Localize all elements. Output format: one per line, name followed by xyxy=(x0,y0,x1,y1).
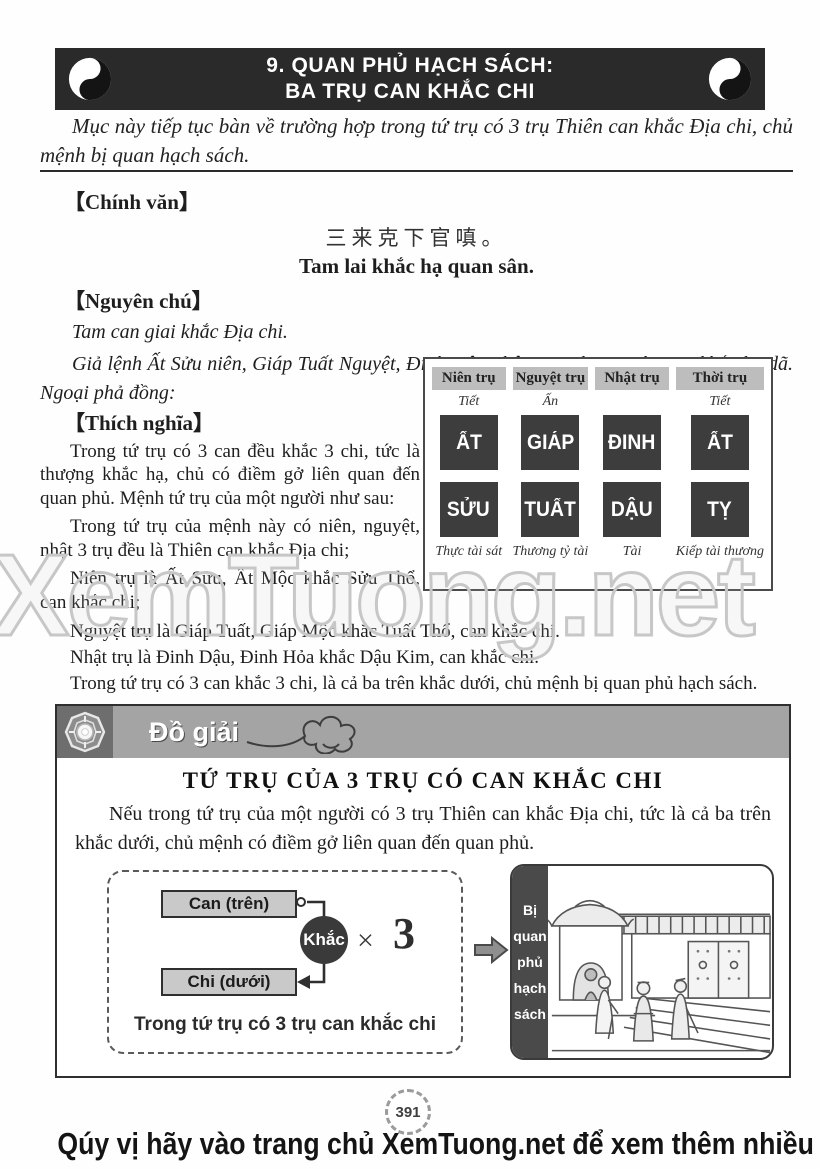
pillar-chi-text: TỴ xyxy=(708,498,733,522)
divider-rule xyxy=(40,170,793,172)
pillar-chi-text: SỬU xyxy=(447,498,490,522)
pillar-column-nhat: Nhật trụ ĐINH DẬU Tài xyxy=(595,367,669,583)
pillar-can-text: ẤT xyxy=(707,431,733,455)
pillar-can-text: ẤT xyxy=(456,431,482,455)
thich-nghia-para: Nhật trụ là Đinh Dậu, Đinh Hỏa khắc Dậu … xyxy=(40,645,793,670)
heading-nguyen-chu: 【Nguyên chú】 xyxy=(64,285,793,315)
pillar-god-top: Tiết xyxy=(709,390,730,413)
pillar-can-box: ẤT xyxy=(691,415,749,470)
left-column: 【Thích nghĩa】 Trong tứ trụ có 3 can đều … xyxy=(40,412,420,614)
result-word: hạch xyxy=(514,980,547,996)
thich-nghia-para: Trong tứ trụ có 3 can đều khắc 3 chi, tứ… xyxy=(40,440,420,511)
result-word: phủ xyxy=(517,954,543,970)
pillar-header: Nguyệt trụ xyxy=(513,367,589,390)
block-arrow-icon xyxy=(473,936,509,970)
pillar-can-text: ĐINH xyxy=(608,431,655,455)
pillar-column-nien: Niên trụ Tiết ẤT SỬU Thực tài sát xyxy=(432,367,506,583)
chapter-intro: Mục này tiếp tục bàn về trường hợp trong… xyxy=(40,112,793,170)
verse-transliteration: Tam lai khắc hạ quan sân. xyxy=(40,254,793,279)
pillar-header: Thời trụ xyxy=(676,367,764,390)
do-giai-label: Đồ giải xyxy=(149,717,239,748)
main-content: 【Chính văn】 三来克下官嗔。 Tam lai khắc hạ quan… xyxy=(40,180,793,1078)
nguyen-chu-para1: Tam can giai khắc Địa chi. xyxy=(40,318,793,347)
pillar-column-thoi: Thời trụ Tiết ẤT TỴ Kiếp tài thương xyxy=(676,367,764,583)
diagram-dashed-frame: Can (trên) Khắc × 3 Chi (dưới) Trong tứ … xyxy=(107,870,463,1054)
diagram-caption: Trong tứ trụ có 3 trụ can khắc chi xyxy=(109,1014,461,1036)
chinese-verse: 三来克下官嗔。 xyxy=(40,222,793,252)
four-pillar-table: Niên trụ Tiết ẤT SỬU Thực tài sát Nguyệt… xyxy=(423,357,773,591)
do-giai-paragraph: Nếu trong tứ trụ của một người có 3 trụ … xyxy=(75,800,771,858)
pillar-column-nguyet: Nguyệt trụ Ấn GIÁP TUẤT Thương tỷ tài xyxy=(513,367,589,583)
pillar-god-bottom: Tài xyxy=(623,540,642,563)
pillar-chi-text: DẬU xyxy=(611,498,653,522)
thich-nghia-para: Nguyệt trụ là Giáp Tuất, Giáp Mộc khắc T… xyxy=(40,619,793,644)
do-giai-box: Đồ giải TỨ TRỤ CỦA 3 TRỤ CÓ CAN KHẮC CHI… xyxy=(55,704,791,1078)
do-giai-title: TỨ TRỤ CỦA 3 TRỤ CÓ CAN KHẮC CHI xyxy=(57,768,789,794)
chapter-title: 9. QUAN PHỦ HẠCH SÁCH: BA TRỤ CAN KHẮC C… xyxy=(113,53,707,105)
do-giai-diagram: Can (trên) Khắc × 3 Chi (dưới) Trong tứ … xyxy=(57,868,789,1076)
thich-nghia-para: Trong tứ trụ của mệnh này có niên, nguyệ… xyxy=(40,515,420,562)
pillar-chi-box: SỬU xyxy=(440,482,498,537)
pillar-god-bottom: Thương tỷ tài xyxy=(513,540,589,563)
pillar-can-text: GIÁP xyxy=(527,431,574,455)
cloud-decoration-icon xyxy=(245,710,395,760)
chapter-title-line2: BA TRỤ CAN KHẮC CHI xyxy=(113,79,707,105)
footer-promo-text: Qúy vị hãy vào trang chủ XemTuong.net để… xyxy=(57,1126,762,1162)
thich-nghia-para: Trong tứ trụ có 3 can khắc 3 chi, là cả … xyxy=(40,671,793,696)
pillar-chi-box: DẬU xyxy=(603,482,661,537)
heading-thich-nghia: 【Thích nghĩa】 xyxy=(64,412,420,436)
khac-circle: Khắc xyxy=(300,916,348,964)
pillar-god-bottom: Kiếp tài thương xyxy=(676,540,764,563)
chapter-title-line1: 9. QUAN PHỦ HẠCH SÁCH: xyxy=(113,53,707,79)
thich-nghia-para: Niên trụ là Ất Sửu, Ất Mộc khắc Sửu Thổ,… xyxy=(40,567,420,614)
heading-chinh-van: 【Chính văn】 xyxy=(64,186,793,216)
can-box: Can (trên) xyxy=(161,890,297,918)
pillar-god-bottom: Thực tài sát xyxy=(435,540,502,563)
result-label: Bị quan phủ hạch sách xyxy=(512,866,548,1058)
multiplier-3: 3 xyxy=(393,908,415,959)
pillar-chi-text: TUẤT xyxy=(525,498,577,522)
times-sign: × xyxy=(357,924,374,958)
pillar-chi-box: TỴ xyxy=(691,482,749,537)
pillar-can-box: ẤT xyxy=(440,415,498,470)
bagua-icon xyxy=(57,706,113,758)
result-word: Bị xyxy=(523,902,537,918)
result-illustration: Bị quan phủ hạch sách xyxy=(510,864,774,1060)
yamen-illustration xyxy=(548,866,772,1058)
chapter-banner: 9. QUAN PHỦ HẠCH SÁCH: BA TRỤ CAN KHẮC C… xyxy=(55,48,765,110)
pillar-header: Nhật trụ xyxy=(595,367,669,390)
pillar-header: Niên trụ xyxy=(432,367,506,390)
pillar-god-top: Tiết xyxy=(458,390,479,413)
pillar-chi-box: TUẤT xyxy=(521,482,579,537)
pillar-god-top: Ấn xyxy=(543,390,559,413)
chi-box: Chi (dưới) xyxy=(161,968,297,996)
result-word: quan xyxy=(513,928,546,944)
do-giai-header-bar: Đồ giải xyxy=(57,706,789,758)
book-page: 9. QUAN PHỦ HẠCH SÁCH: BA TRỤ CAN KHẮC C… xyxy=(0,0,820,1170)
yinyang-icon xyxy=(67,56,113,102)
result-word: sách xyxy=(514,1006,546,1022)
pillar-can-box: GIÁP xyxy=(521,415,579,470)
yinyang-icon xyxy=(707,56,753,102)
pillar-can-box: ĐINH xyxy=(603,415,661,470)
